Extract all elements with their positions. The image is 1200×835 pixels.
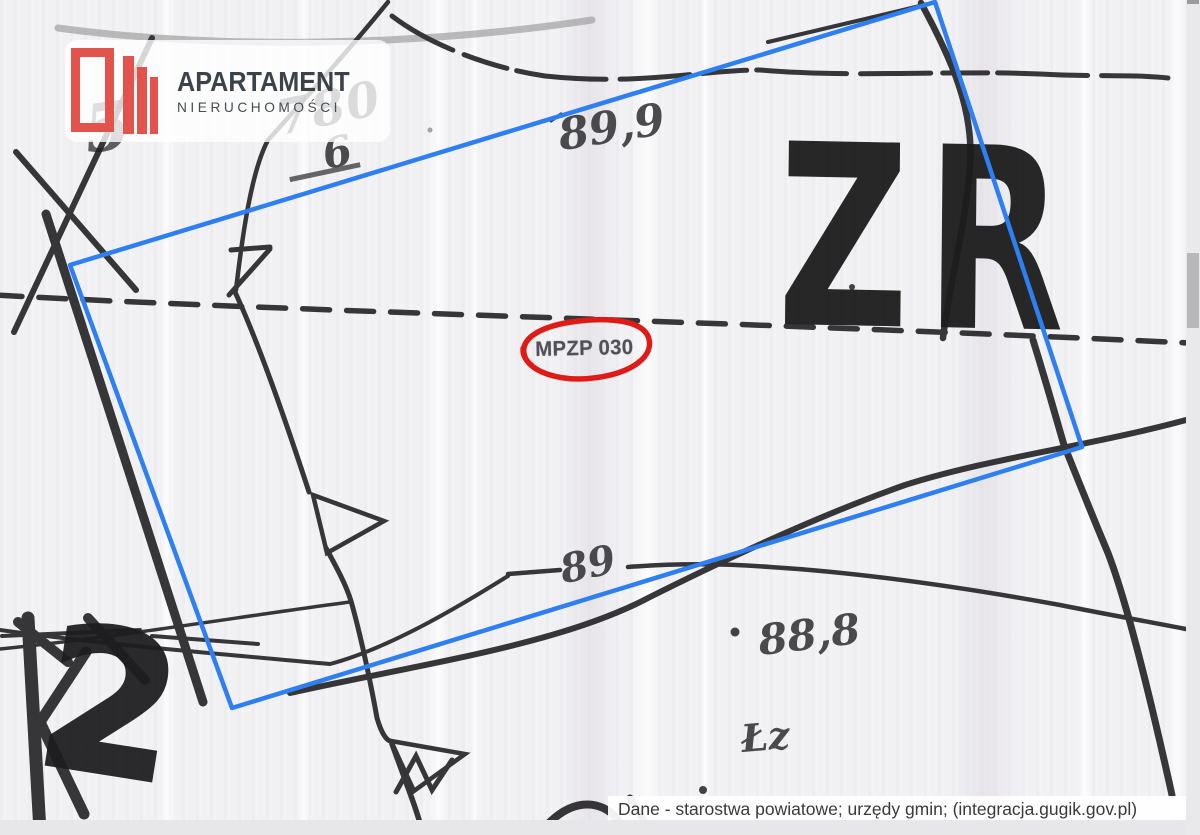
elevation-89-9: 89,9 [555, 94, 669, 161]
logo-subtitle: NIERUCHOMOŚCI [177, 99, 365, 115]
page: 5 780 6 89,9 ZR MPZP 030 89 88,8 Łz 2 [0, 0, 1200, 835]
logo-text: APARTAMENT NIERUCHOMOŚCI [177, 67, 369, 115]
logo-title: APARTAMENT [177, 67, 350, 96]
land-use-lz: Łz [739, 712, 791, 761]
scrollbar-cap [1187, 0, 1199, 4]
zone-label-zr: ZR [776, 112, 1081, 370]
agency-logo: APARTAMENT NIERUCHOMOŚCI [65, 40, 390, 142]
map-attribution: Dane - starostwa powiatowe; urzędy gmin;… [608, 796, 1186, 820]
buildings-icon [71, 48, 163, 134]
scrollbar-thumb[interactable] [1187, 253, 1199, 328]
scrollbar-track[interactable] [1186, 0, 1200, 835]
contour-label-89: 89 [556, 536, 620, 594]
door-frame-shape [71, 48, 114, 132]
spot-elevation-88-8: 88,8 [755, 604, 863, 665]
building-bar [137, 67, 147, 134]
map-canvas[interactable]: 5 780 6 89,9 ZR MPZP 030 89 88,8 Łz 2 [0, 0, 1186, 820]
building-bar [150, 77, 158, 134]
mpzp-zone-code: MPZP 030 [535, 336, 634, 362]
land-use-k2-digit: 2 [27, 598, 192, 813]
building-bar [123, 56, 134, 134]
